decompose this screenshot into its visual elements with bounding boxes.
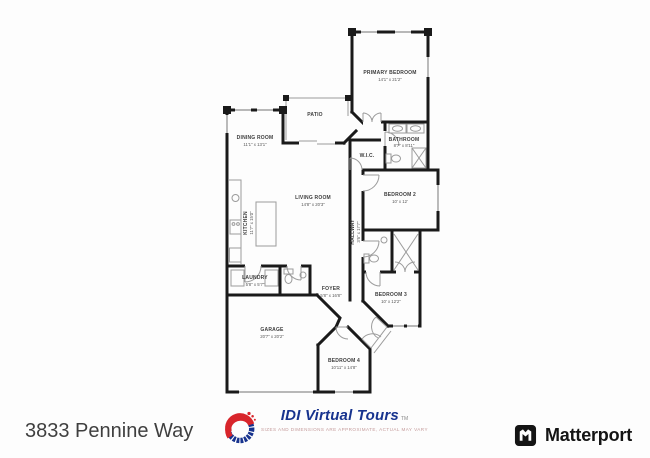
primary-bedroom-dims: 14'1" x 21'2" [378,77,402,82]
floor-plan: PRIMARY BEDROOM 14'1" x 21'2" BATHROOM 8… [0,0,650,410]
idi-brand-text: IDI Virtual Tours [281,407,399,424]
bedroom-4-name: BEDROOM 4 [328,358,360,364]
room-label-wic: W.I.C. [360,153,375,159]
bedroom-3-name: BEDROOM 3 [375,292,407,298]
room-label-foyer: FOYER 5'8" x 16'8" [320,286,342,298]
bedroom-3-dims: 10' x 12'2" [381,299,401,304]
foyer-name: FOYER [322,286,340,292]
dining-room-dims: 11'1" x 13'1" [243,142,267,147]
idi-logo-text: IDI Virtual Tours TM SIZES AND DIMENSION… [261,407,428,432]
room-label-patio: PATIO [307,112,323,118]
bedroom-2-name: BEDROOM 2 [384,192,416,198]
room-label-garage: GARAGE 20'7" x 20'2" [260,327,284,339]
matterport-logo-icon [514,424,537,447]
laundry-dims: 5'8" x 5'7" [246,282,265,287]
floorplan-page: PRIMARY BEDROOM 14'1" x 21'2" BATHROOM 8… [0,0,650,458]
room-label-hallway: HALLWAY 3'6" x 17'7" [350,219,361,245]
bedroom-4-dims: 10'11" x 14'8" [331,365,357,370]
room-label-laundry: LAUNDRY 5'8" x 5'7" [242,275,268,287]
laundry-name: LAUNDRY [242,275,268,281]
hallway-dims: 3'6" x 17'7" [356,221,361,243]
room-label-bedroom-2: BEDROOM 2 10' x 12' [384,192,416,204]
idi-virtual-tours-logo: IDI Virtual Tours TM SIZES AND DIMENSION… [222,407,428,447]
windows [227,32,438,392]
matterport-logo: Matterport [514,424,632,447]
room-label-bedroom-4: BEDROOM 4 10'11" x 14'8" [328,358,360,370]
idi-logo-icon [222,407,258,447]
room-label-bathroom: BATHROOM 8'7" x 8'11" [389,137,420,148]
bedroom-2-dims: 10' x 12' [392,199,408,204]
idi-trademark: TM [401,416,408,422]
room-label-bedroom-3: BEDROOM 3 10' x 12'2" [375,292,407,304]
foyer-dims: 5'8" x 16'8" [320,293,342,298]
primary-bedroom-name: PRIMARY BEDROOM [363,70,416,76]
matterport-brand-text: Matterport [545,425,632,446]
living-room-dims: 14'8" x 20'3" [301,202,325,207]
room-label-living-room: LIVING ROOM 14'8" x 20'3" [295,195,331,207]
kitchen-dims: 11'7" x 15'0" [249,211,254,235]
living-room-name: LIVING ROOM [295,195,331,201]
room-label-dining-room: DINING ROOM 11'1" x 13'1" [237,135,274,147]
garage-name: GARAGE [260,327,284,333]
patio-name: PATIO [307,112,323,118]
address-text: 3833 Pennine Way [25,420,193,443]
room-label-primary-bedroom: PRIMARY BEDROOM 14'1" x 21'2" [363,70,416,82]
room-label-kitchen: KITCHEN 11'7" x 15'0" [243,211,254,235]
dining-room-name: DINING ROOM [237,135,274,141]
wic-name: W.I.C. [360,153,375,159]
garage-dims: 20'7" x 20'2" [260,334,284,339]
idi-tagline: SIZES AND DIMENSIONS ARE APPROXIMATE, AC… [261,427,428,432]
bathroom-dims: 8'7" x 8'11" [394,143,415,148]
walls [227,32,438,392]
